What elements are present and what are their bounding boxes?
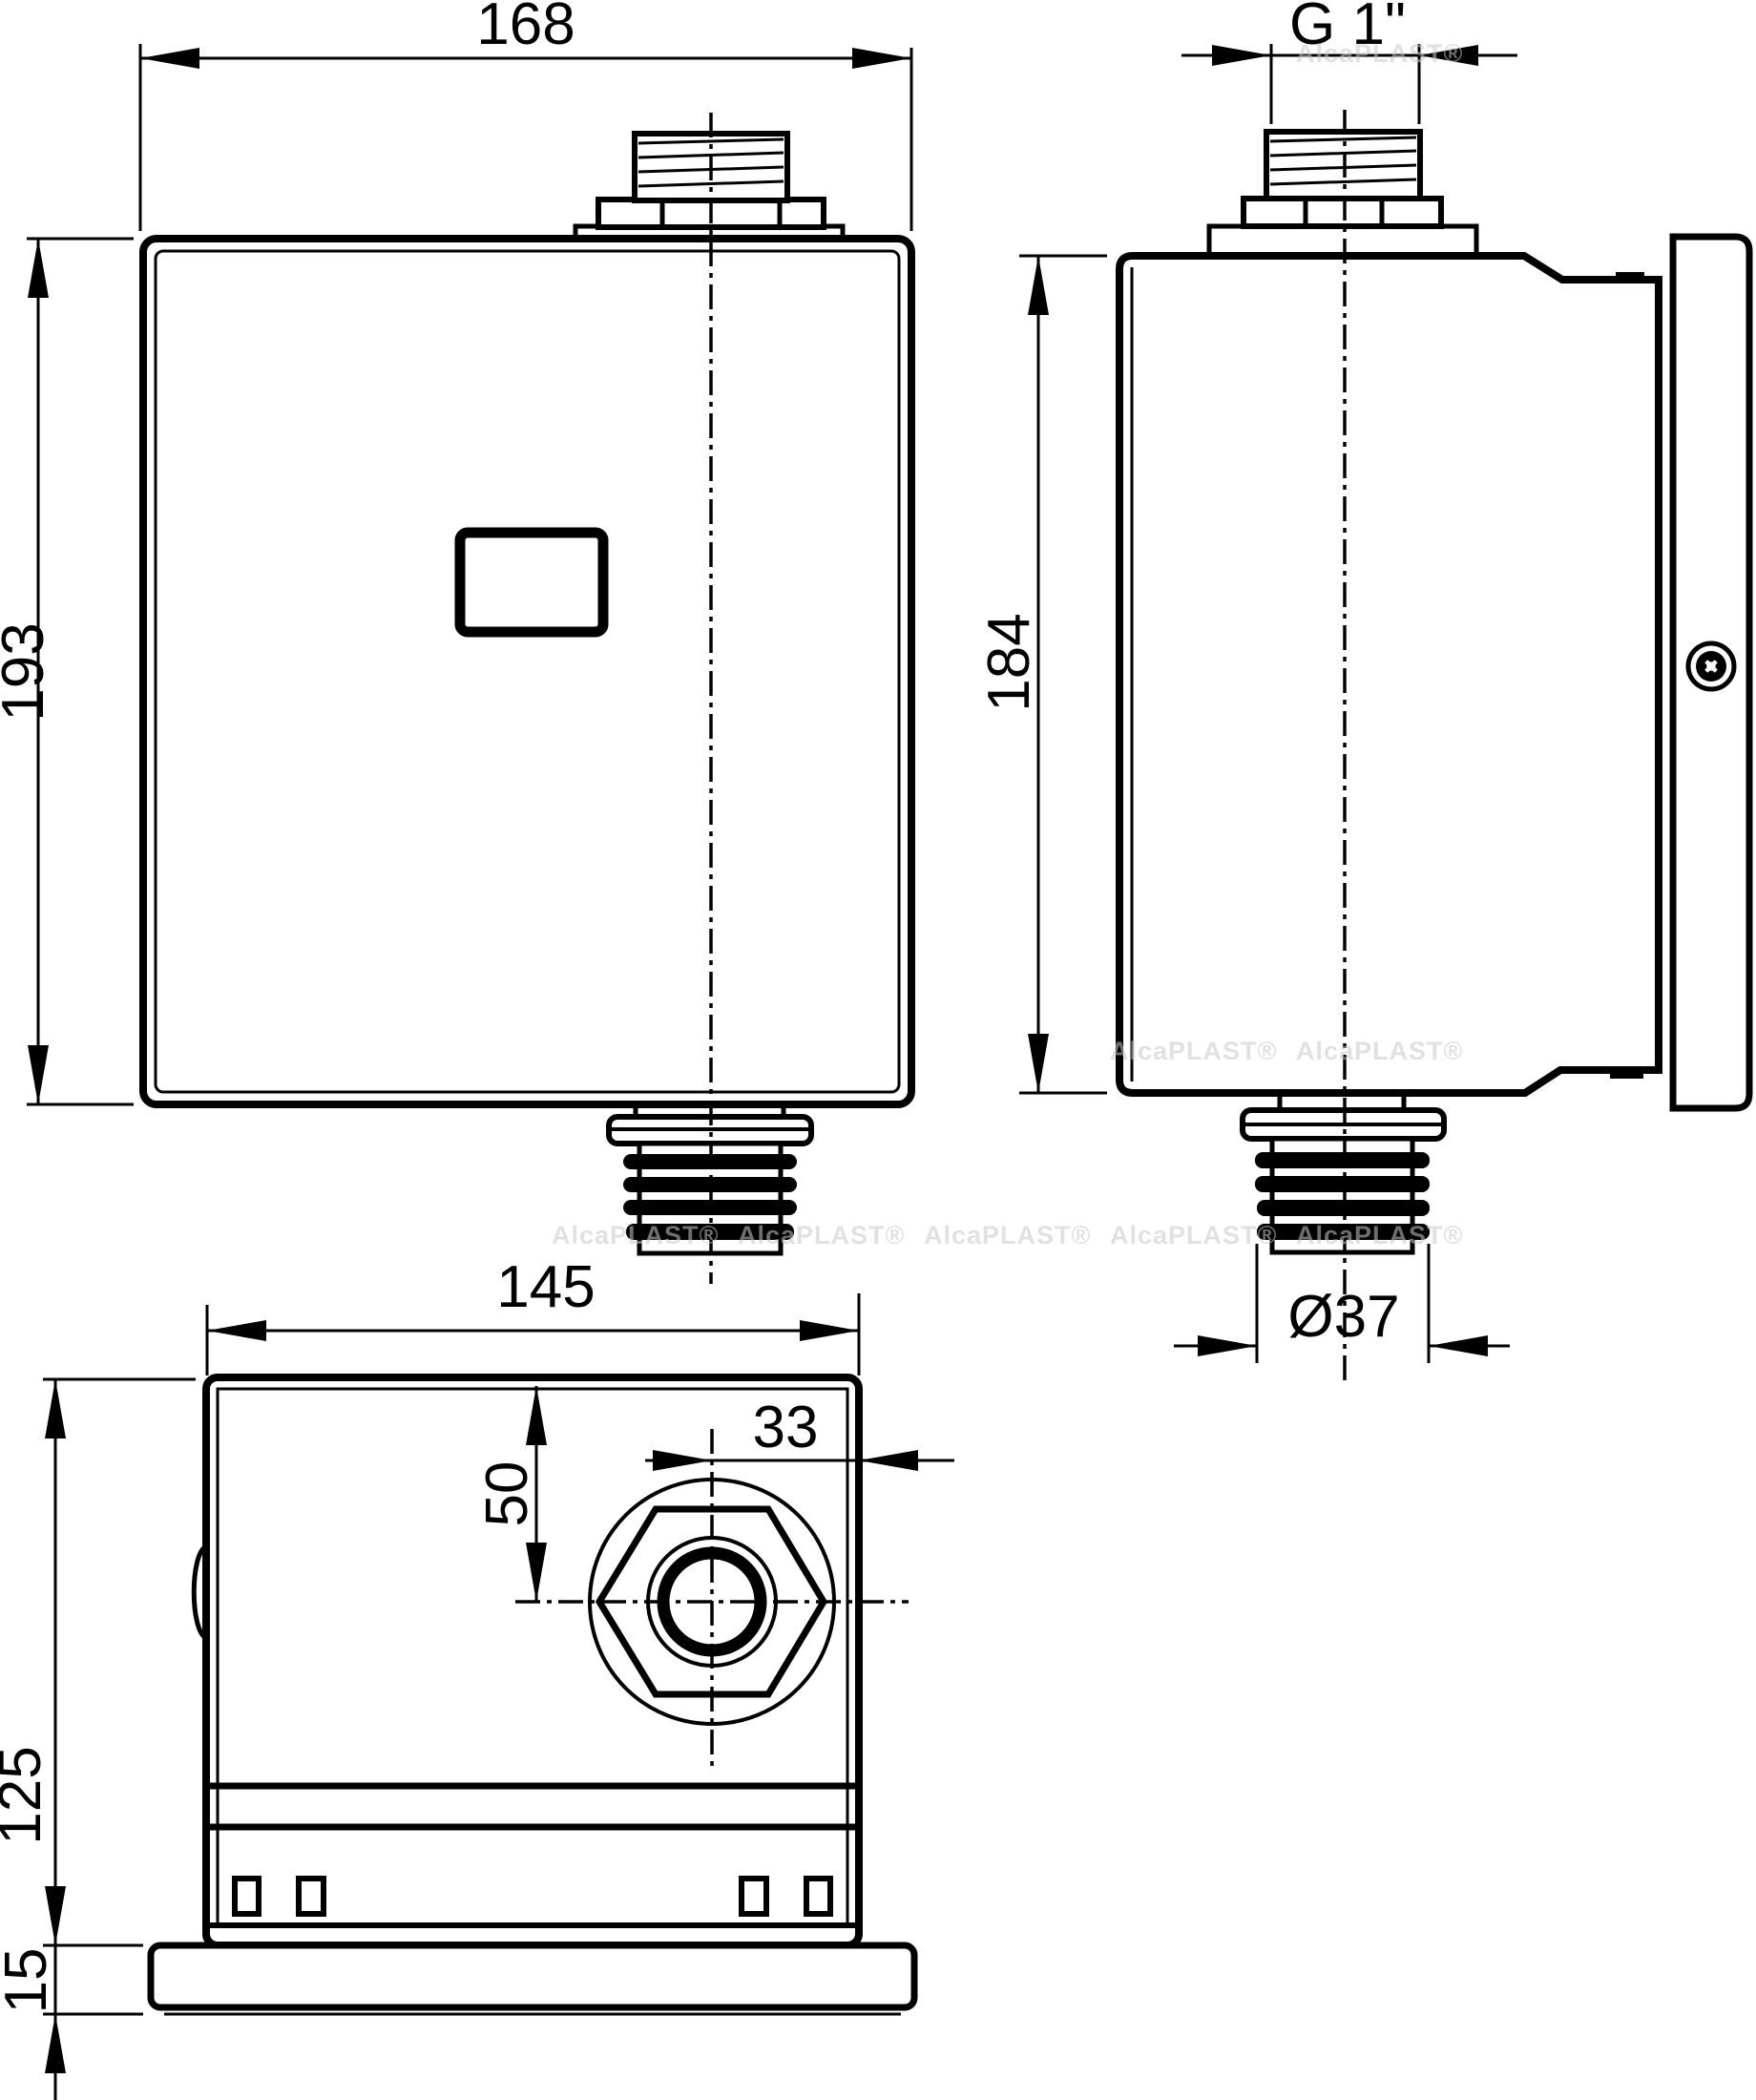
dimension-bottom-depth: 125 — [0, 1379, 196, 1945]
sensor-window — [460, 533, 603, 632]
dimension-side-outlet-diameter: Ø37 — [1174, 1244, 1510, 1363]
drawing-svg: 168 193 — [0, 0, 1756, 2100]
dim-label-bottom-width: 145 — [496, 1254, 595, 1320]
dim-label-bottom-depth: 125 — [0, 1746, 53, 1844]
clip-foot-bottom — [1610, 1069, 1643, 1079]
mount-clip — [806, 1879, 830, 1914]
side-connector-base — [1209, 226, 1476, 256]
front-view — [143, 113, 911, 1284]
watermark-text: AlcaPLAST® — [1296, 1037, 1463, 1065]
front-top-thread-connector — [575, 134, 843, 241]
base-flange — [151, 1945, 914, 2007]
dimension-flange-thickness: 15 — [0, 1945, 143, 2100]
watermark-text: AlcaPLAST® — [1110, 1221, 1277, 1249]
dim-label-outlet-offset-y: 50 — [474, 1461, 540, 1527]
watermark-text: AlcaPLAST® — [924, 1221, 1091, 1249]
watermark-text: AlcaPLAST® — [1296, 39, 1463, 68]
watermark-text: AlcaPLAST® — [552, 1221, 719, 1249]
mount-clip — [742, 1879, 766, 1914]
side-outlet-rib — [1255, 1152, 1430, 1168]
screw — [1688, 643, 1734, 689]
dimension-bottom-width: 145 — [207, 1254, 859, 1375]
watermark-text: AlcaPLAST® — [1296, 1221, 1463, 1249]
side-connector-nut — [1244, 199, 1441, 226]
watermark-text: AlcaPLAST® — [738, 1221, 905, 1249]
side-outlet-rib — [1255, 1176, 1430, 1192]
dim-label-front-width: 168 — [476, 0, 575, 57]
dim-label-side-height: 184 — [976, 613, 1042, 711]
mount-clip — [235, 1879, 259, 1914]
dimension-front-width: 168 — [140, 0, 911, 231]
dim-label-flange-thickness: 15 — [0, 1948, 59, 2014]
side-top-thread-connector — [1209, 132, 1476, 256]
technical-drawing: 168 193 — [0, 0, 1756, 2100]
watermark-text: AlcaPLAST® — [1110, 1037, 1277, 1065]
clip-foot-top — [1616, 272, 1644, 281]
dim-label-front-height: 193 — [0, 622, 56, 721]
side-body — [1119, 256, 1659, 1093]
side-view — [1119, 110, 1749, 1382]
front-body — [143, 239, 911, 1104]
dim-label-side-outlet-diameter: Ø37 — [1287, 1284, 1399, 1350]
dim-label-outlet-offset-x: 33 — [753, 1395, 819, 1460]
dimension-front-height: 193 — [0, 239, 134, 1104]
mount-clip — [299, 1879, 324, 1914]
dimension-side-height: 184 — [976, 256, 1107, 1093]
